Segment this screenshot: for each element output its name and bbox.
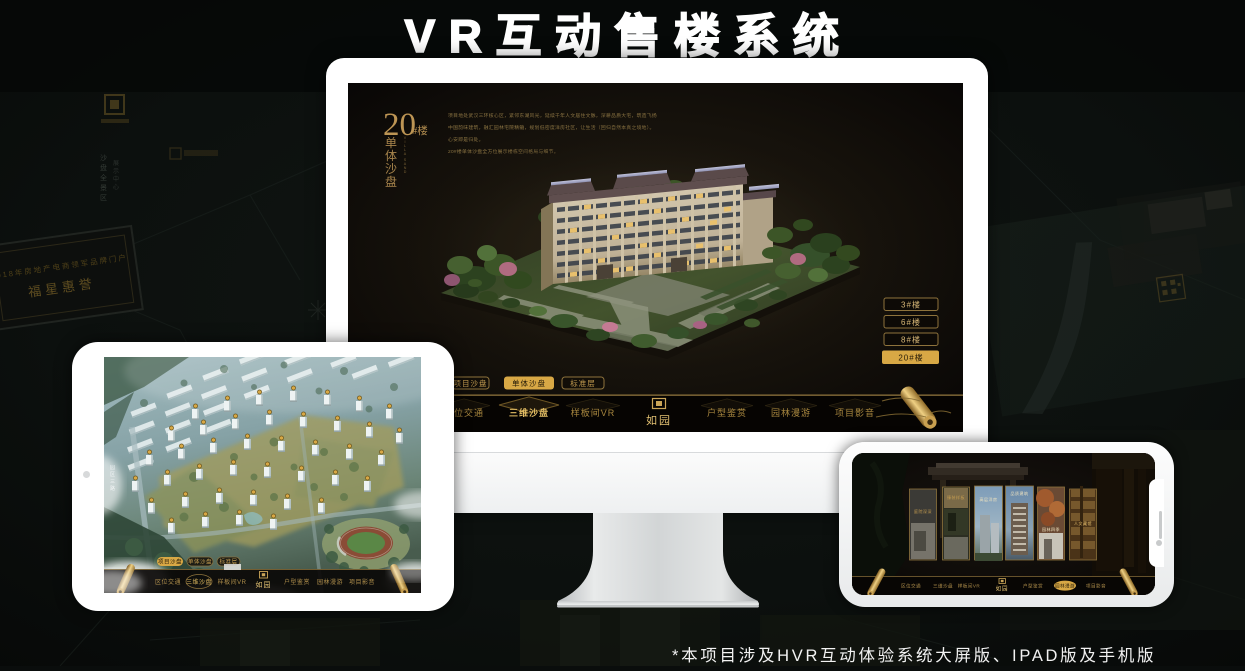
svg-text:户型鉴赏: 户型鉴赏	[1023, 583, 1043, 590]
svg-text:景: 景	[100, 184, 107, 192]
svg-text:臻装样板: 臻装样板	[947, 494, 965, 500]
svg-text:单体沙盘: 单体沙盘	[512, 378, 546, 388]
svg-text:区位交通: 区位交通	[901, 583, 921, 590]
svg-text:样板间VR: 样板间VR	[958, 583, 980, 590]
svg-text:如园: 如园	[996, 585, 1009, 593]
svg-text:沙: 沙	[100, 154, 107, 162]
svg-text:8#楼: 8#楼	[901, 335, 921, 345]
svg-text:沙: 沙	[385, 162, 397, 176]
svg-text:三维沙盘: 三维沙盘	[186, 578, 212, 586]
svg-text:展: 展	[113, 160, 119, 167]
svg-text:项目沙盘: 项目沙盘	[454, 378, 488, 388]
svg-text:区: 区	[100, 194, 107, 202]
svg-text:体: 体	[385, 149, 397, 163]
svg-text:样板间VR: 样板间VR	[571, 407, 616, 418]
svg-text:人文藏馆: 人文藏馆	[1074, 520, 1092, 526]
svg-text:心: 心	[113, 184, 119, 191]
svg-text:园林四季: 园林四季	[1042, 526, 1060, 532]
svg-text:示: 示	[113, 168, 119, 175]
svg-text:项目影音: 项目影音	[349, 578, 375, 586]
svg-text:园林漫游: 园林漫游	[1055, 583, 1075, 590]
svg-text:20#楼: 20#楼	[898, 353, 923, 363]
svg-text:D: D	[404, 170, 407, 174]
svg-text:样板间VR: 样板间VR	[218, 578, 247, 586]
svg-text:单: 单	[385, 136, 397, 150]
svg-text:三维沙盘: 三维沙盘	[509, 407, 549, 418]
svg-text:项目影音: 项目影音	[835, 407, 875, 418]
svg-text:区位交通: 区位交通	[155, 578, 181, 586]
svg-text:园林漫游: 园林漫游	[317, 578, 343, 586]
svg-text:中: 中	[113, 175, 119, 183]
svg-text:户型鉴赏: 户型鉴赏	[284, 578, 310, 586]
svg-text:6#楼: 6#楼	[901, 317, 921, 327]
svg-text:单体沙盘: 单体沙盘	[188, 558, 212, 566]
svg-text:标准层: 标准层	[570, 378, 596, 388]
svg-text:项目沙盘: 项目沙盘	[158, 558, 182, 566]
svg-text:庭院深深: 庭院深深	[914, 508, 932, 514]
svg-text:品质建筑: 品质建筑	[1011, 490, 1029, 496]
svg-text:高层洋房: 高层洋房	[980, 496, 998, 502]
svg-text:三维沙盘: 三维沙盘	[933, 583, 953, 590]
svg-text:盘: 盘	[385, 174, 397, 189]
svg-text:如园: 如园	[646, 413, 672, 427]
svg-text:全: 全	[100, 173, 107, 182]
svg-text:如园: 如园	[256, 580, 272, 589]
svg-text:园林漫游: 园林漫游	[771, 407, 811, 418]
svg-text:盘: 盘	[100, 163, 107, 172]
svg-text:项目影音: 项目影音	[1086, 583, 1106, 590]
svg-text:户型鉴赏: 户型鉴赏	[707, 407, 747, 418]
svg-text:3#楼: 3#楼	[901, 300, 921, 310]
svg-text:#楼: #楼	[412, 124, 428, 137]
